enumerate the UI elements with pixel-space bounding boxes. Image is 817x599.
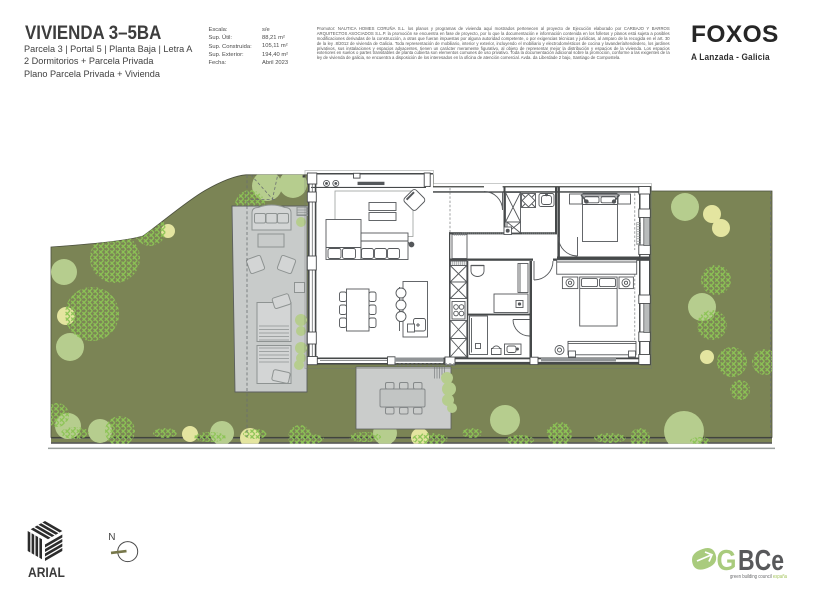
svg-text:BCe: BCe	[738, 545, 784, 577]
svg-text:G: G	[717, 545, 737, 577]
svg-text:green building council españa: green building council españa	[730, 574, 788, 580]
